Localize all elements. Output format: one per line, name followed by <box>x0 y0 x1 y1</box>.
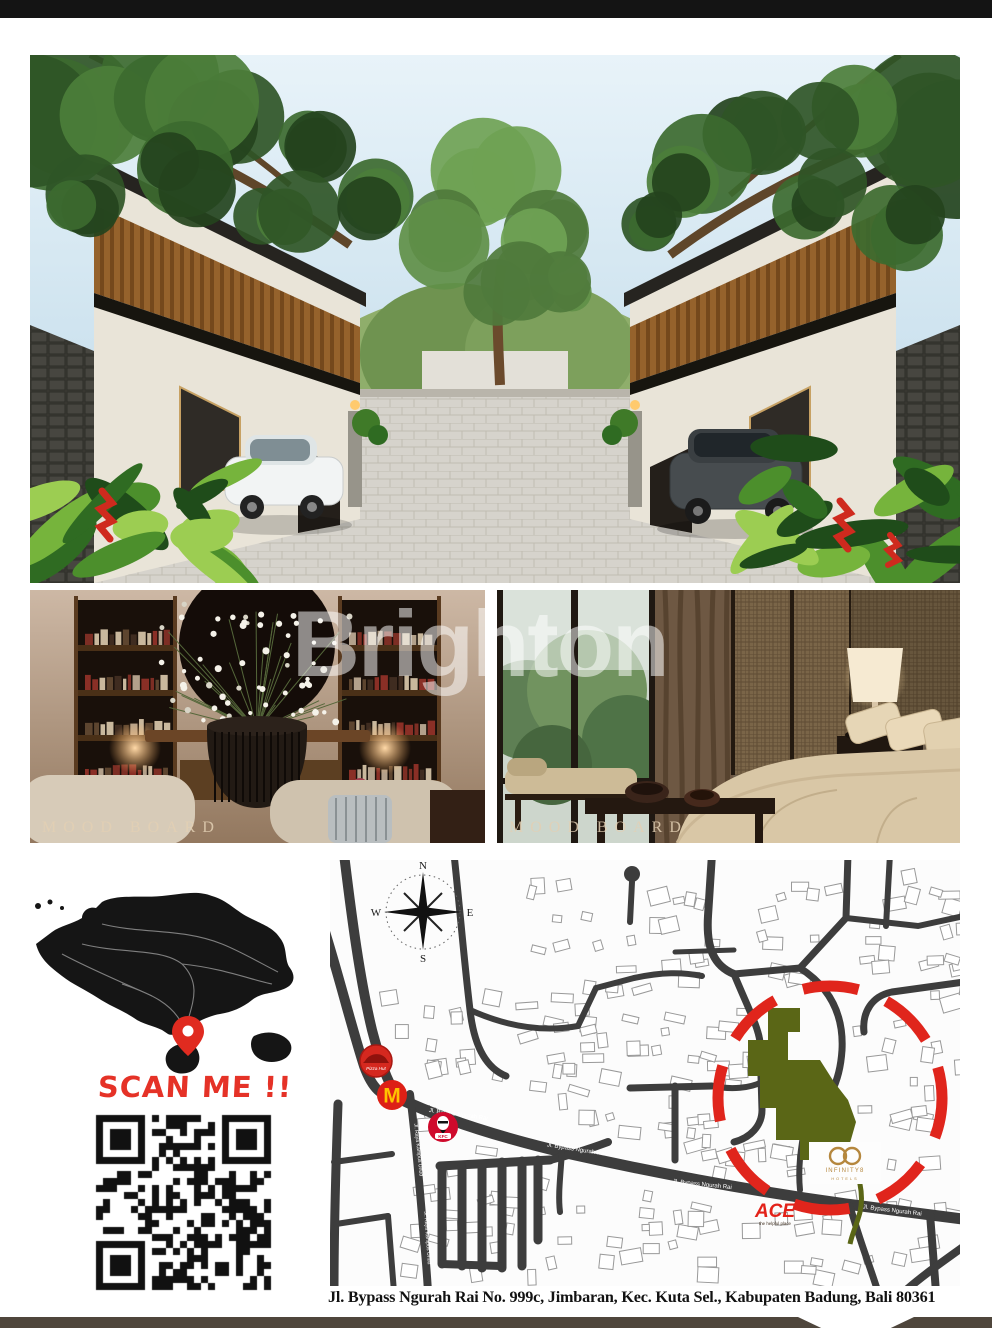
svg-text:KFC: KFC <box>438 1134 448 1139</box>
ace-logo: ACE the helpful place <box>754 1201 796 1226</box>
svg-text:HOTELS: HOTELS <box>831 1177 858 1181</box>
villa-street-render <box>30 55 960 583</box>
mood-board-label: MOOD BOARD <box>42 819 221 836</box>
metal-drum-table <box>328 795 392 843</box>
compass-label-s: S <box>420 953 426 965</box>
address-line: Jl. Bypass Ngurah Rai No. 999c, Jimbaran… <box>328 1288 964 1307</box>
svg-text:Pizza Hut: Pizza Hut <box>366 1066 386 1071</box>
svg-text:M: M <box>383 1085 401 1108</box>
flyer-page: MOOD BOARD <box>0 0 992 1328</box>
bali-island-map <box>22 884 322 1084</box>
svg-text:INFINITY8: INFINITY8 <box>825 1168 864 1174</box>
mcdonalds-icon: M <box>377 1080 407 1110</box>
pizza-hut-icon: Pizza Hut <box>360 1045 392 1077</box>
street-map: Jl. Bypass Ngurah Rai Jl. Bypass Ngurah … <box>330 860 960 1286</box>
kfc-icon: KFC <box>428 1112 458 1142</box>
compass-label-n: N <box>419 860 427 872</box>
infinity8-logo: INFINITY8 HOTELS <box>809 1142 881 1184</box>
table-lamp-glow <box>109 722 161 774</box>
compass-label-w: W <box>371 907 382 919</box>
qr-code <box>93 1112 275 1294</box>
mood-board-right-image: MOOD BOARD <box>497 590 960 843</box>
mood-board-label: MOOD BOARD <box>509 819 688 836</box>
hero-image <box>30 55 960 583</box>
top-bar <box>0 0 992 18</box>
table-lamp-glow <box>359 722 411 774</box>
scan-me-label: SCAN ME !! <box>59 1070 331 1104</box>
svg-text:ACE: ACE <box>754 1201 796 1222</box>
mood-board-left-image: MOOD BOARD <box>30 590 485 843</box>
bookshelf-right <box>338 596 441 810</box>
ace-tagline: the helpful place <box>759 1221 792 1226</box>
compass-label-e: E <box>467 907 474 919</box>
